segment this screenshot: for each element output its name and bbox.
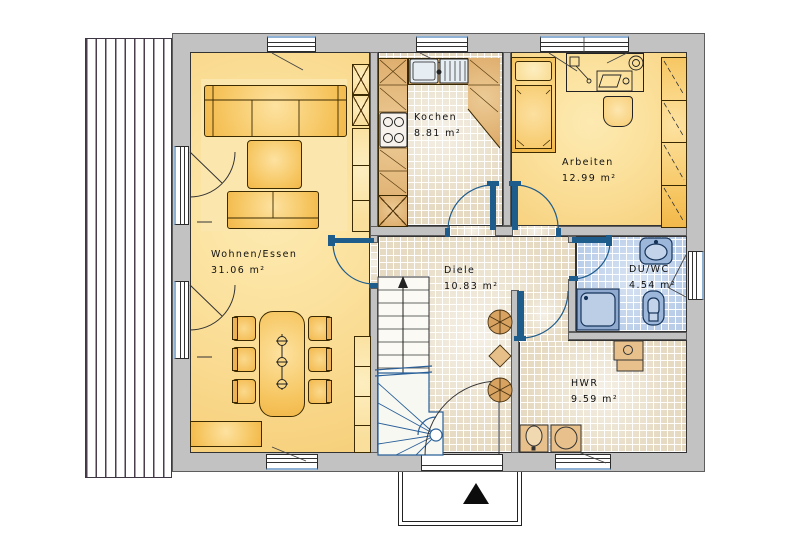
window-duwc-east: [688, 251, 704, 300]
wall-wohnen-diele: [370, 288, 378, 453]
shelf-divider: [353, 165, 369, 166]
window-essen-south: [266, 454, 318, 470]
room-area: 12.99 m²: [562, 171, 616, 187]
label-arbeiten: Arbeiten 12.99 m²: [562, 155, 616, 187]
window-wohnen-north: [267, 36, 316, 52]
room-name: Wohnen/Essen: [211, 247, 297, 263]
threshold-kochen: [450, 226, 495, 236]
terrace-door-south-frame: [174, 281, 189, 359]
room-name: DU/WC: [629, 262, 676, 278]
window-arbeiten-north: [540, 36, 629, 52]
room-name: Diele: [444, 263, 498, 279]
dining-chair: [232, 316, 256, 341]
bed-pillow: [515, 61, 552, 81]
room-name: Arbeiten: [562, 155, 616, 171]
entrance-porch: [398, 471, 522, 526]
window-hwr-south: [555, 454, 611, 470]
terrace-door-north-frame: [174, 146, 189, 225]
label-wohnen-essen: Wohnen/Essen 31.06 m²: [211, 247, 297, 279]
kitchen-counter-north: [408, 58, 470, 85]
sofa-large: [204, 85, 347, 137]
wall-diele-north-b: [495, 226, 513, 236]
cabinet-upper-b: [352, 95, 370, 126]
dining-chair: [308, 316, 332, 341]
wardrobe-divider: [662, 142, 686, 143]
shelf-divider: [355, 396, 370, 397]
floor-plan: Wohnen/Essen 31.06 m² Kochen 8.81 m² Arb…: [0, 0, 800, 560]
cabinet-upper-a: [352, 64, 370, 95]
label-hwr: HWR 9.59 m²: [571, 376, 618, 408]
desk: [566, 53, 644, 92]
terrace-deck: [85, 38, 172, 478]
room-area: 9.59 m²: [571, 392, 618, 408]
dining-chair: [308, 347, 332, 372]
label-du-wc: DU/WC 4.54 m²: [629, 262, 676, 294]
dining-table: [259, 311, 305, 417]
room-area: 10.83 m²: [444, 279, 498, 295]
wall-duwc-hwr: [568, 332, 687, 340]
shelf-divider: [355, 425, 370, 426]
shelf-divider: [355, 366, 370, 367]
wardrobe: [661, 57, 687, 228]
threshold-wohnen: [370, 243, 378, 288]
front-door-threshold: [421, 454, 503, 471]
wall-diele-hwr: [511, 290, 519, 453]
wall-duwc-west-a: [568, 236, 576, 243]
wardrobe-divider: [662, 100, 686, 101]
shelf-divider: [353, 200, 369, 201]
wall-diele-north-a: [370, 226, 450, 236]
label-kochen: Kochen 8.81 m²: [414, 110, 461, 142]
window-kochen-north: [416, 36, 468, 52]
coffee-table: [247, 140, 302, 189]
dining-chair: [232, 379, 256, 404]
room-name: HWR: [571, 376, 618, 392]
bed-mattress: [515, 85, 552, 149]
room-area: 31.06 m²: [211, 263, 297, 279]
label-diele: Diele 10.83 m²: [444, 263, 498, 295]
wall-wohnen-kochen: [370, 52, 378, 243]
room-area: 4.54 m²: [629, 278, 676, 294]
wardrobe-divider: [662, 185, 686, 186]
sofa-small: [227, 191, 319, 229]
sideboard: [190, 421, 262, 447]
room-name: Kochen: [414, 110, 461, 126]
wall-kochen-arbeiten: [503, 52, 511, 226]
room-area: 8.81 m²: [414, 126, 461, 142]
dining-chair: [308, 379, 332, 404]
threshold-arbeiten: [513, 226, 558, 236]
desk-chair: [603, 96, 633, 127]
room-hwr-strip: [519, 290, 568, 342]
shelf-upper: [352, 128, 370, 232]
wall-duwc-west-b: [568, 279, 576, 332]
entrance-arrow-icon: [463, 483, 489, 504]
shelf-dining: [354, 336, 371, 453]
dining-chair: [232, 347, 256, 372]
kitchen-cabinet-x: [378, 195, 408, 227]
